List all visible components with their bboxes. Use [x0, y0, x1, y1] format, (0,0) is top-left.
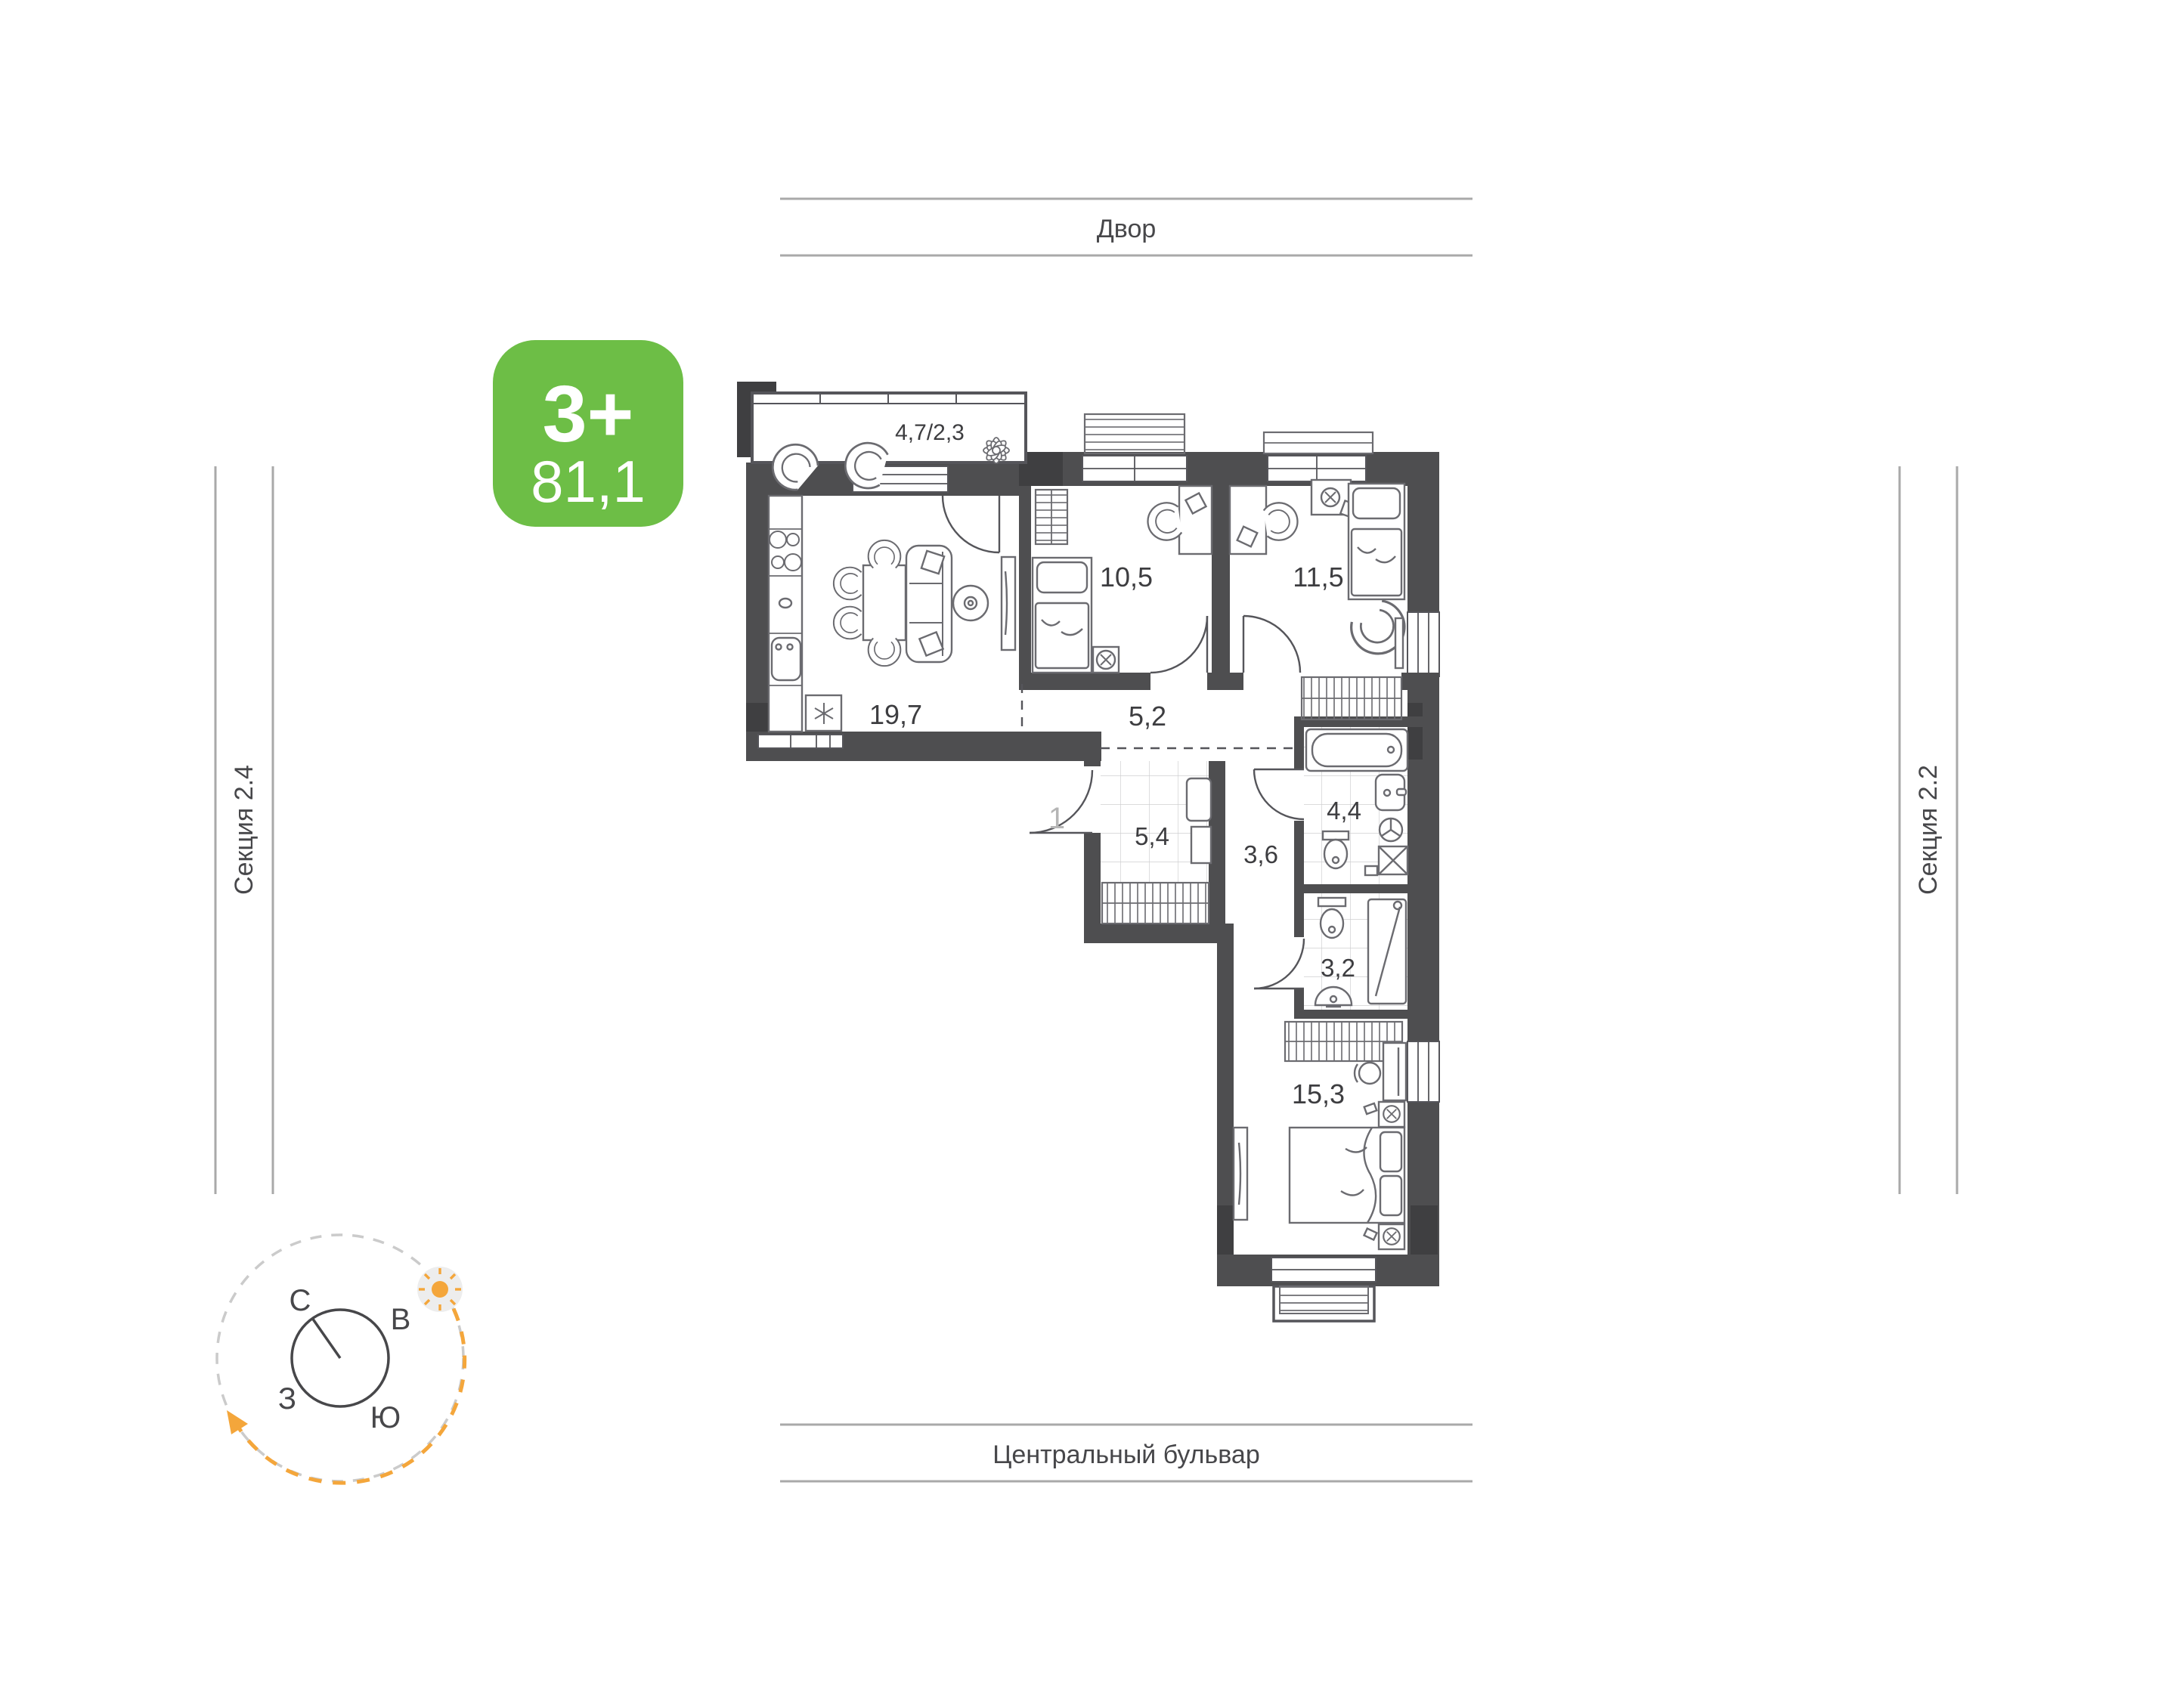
nightstand [1364, 1102, 1404, 1127]
nightstand [1093, 647, 1119, 673]
bathtub-icon [1306, 729, 1407, 771]
room-label-living: 19,7 [869, 699, 922, 730]
radiator [1395, 618, 1403, 668]
room-label-bedroom-small: 10,5 [1100, 562, 1153, 593]
door-arc [1150, 616, 1207, 673]
floor-drain [1365, 866, 1377, 875]
window-basket [1085, 414, 1184, 453]
shoe-cabinet [1187, 778, 1211, 821]
room-label-bathroom: 4,4 [1327, 797, 1361, 825]
nightstand [1364, 1224, 1404, 1249]
toilet-icon [1318, 898, 1346, 938]
street-label-top: Двор [780, 199, 1472, 255]
room-label-hallway: 5,2 [1129, 701, 1166, 732]
bedroom-small: 10,5 [1033, 486, 1212, 673]
lamp-icon [1383, 1106, 1400, 1122]
floor-plan: 4,7/2,3 [737, 382, 1439, 1321]
street-bottom-text: Центральный бульвар [993, 1440, 1259, 1469]
lamp-icon [1383, 1228, 1400, 1245]
door-arc [1243, 616, 1300, 673]
room-label-shower-room: 3,2 [1321, 954, 1355, 982]
sofa [906, 546, 952, 662]
room-label-corridor: 3,6 [1243, 840, 1278, 868]
shoe-cabinet [1191, 827, 1211, 863]
desk-chair-icon [1263, 500, 1300, 542]
desk-chair-icon [1145, 501, 1182, 543]
street-label-bottom: Центральный бульвар [780, 1425, 1472, 1481]
room-label-balcony: 4,7/2,3 [895, 420, 965, 445]
fan-icon [1380, 818, 1402, 841]
badge-area: 81,1 [531, 448, 646, 515]
toilet-icon [1323, 831, 1349, 868]
dining-chair-icon [834, 568, 862, 600]
bed-single [1033, 558, 1092, 673]
badge-rooms-count: 3+ [543, 370, 634, 459]
tv-stand [1002, 557, 1015, 650]
compass: С В З Ю [217, 1235, 465, 1483]
bath-sink-icon [1376, 775, 1406, 810]
dining-table [863, 565, 906, 640]
dining-chair-icon [834, 607, 862, 639]
compass-north-label: С [290, 1284, 311, 1317]
kitchen-counter [769, 496, 802, 732]
window-sill [1264, 432, 1373, 453]
room-label-bedroom-middle: 11,5 [1293, 562, 1343, 593]
balcony-door [943, 496, 999, 552]
lamp-icon [1321, 488, 1339, 506]
room-label-entry-hall: 5,4 [1135, 822, 1169, 850]
section-label-left: Секция 2.4 [215, 466, 273, 1194]
plant-icon [983, 438, 1009, 463]
lamp-icon [1097, 651, 1115, 669]
compass-east-label: В [391, 1303, 411, 1336]
dining-chair-icon [869, 540, 901, 568]
sun-path-arrow-icon [227, 1410, 248, 1434]
armchair-icon [1346, 596, 1415, 664]
compass-south-label: Ю [370, 1401, 401, 1434]
section-left-text: Секция 2.4 [230, 765, 259, 895]
bedroom-middle: 11,5 [1230, 480, 1415, 673]
living-kitchen: 19,7 [769, 496, 1015, 732]
section-right-text: Секция 2.2 [1914, 765, 1943, 895]
dining-chair-icon [869, 638, 901, 666]
tv-stand [1234, 1128, 1247, 1220]
street-top-text: Двор [1097, 215, 1157, 243]
floor-plan-canvas: Двор Центральный бульвар Секция 2.4 Секц… [0, 0, 2177, 1708]
apartment-badge: 3+ 81,1 [493, 340, 683, 527]
room-label-bedroom-master: 15,3 [1292, 1078, 1345, 1109]
coffee-table [953, 586, 988, 620]
kitchen-sink-icon [772, 638, 801, 680]
bedroom-master: 15,3 [1234, 1022, 1406, 1249]
section-label-right: Секция 2.2 [1900, 466, 1957, 1194]
vent-shaft-icon [1379, 846, 1407, 874]
floorplan-page: Двор Центральный бульвар Секция 2.4 Секц… [0, 0, 2177, 1708]
bed-double [1290, 1128, 1404, 1223]
fridge-icon [806, 695, 841, 731]
bed-single [1349, 484, 1404, 599]
nightstand [1311, 480, 1354, 517]
french-balcony [1274, 1286, 1374, 1321]
shower-icon [1368, 899, 1406, 1004]
entrance-number: 1 [1048, 802, 1065, 835]
compass-west-label: З [278, 1382, 296, 1416]
